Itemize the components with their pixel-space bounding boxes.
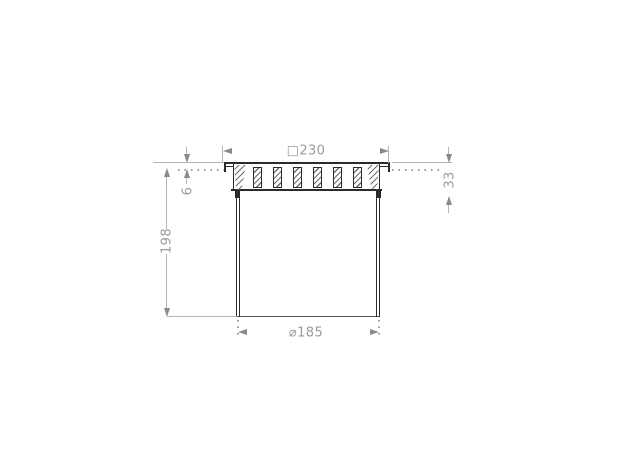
technical-drawing-canvas: □230 6 198 33 ⌀185 xyxy=(0,0,640,452)
arrow-6-down xyxy=(184,154,190,163)
ext-line-flange-right xyxy=(392,162,452,163)
arrow-33-down xyxy=(446,154,452,163)
body-bottom-line xyxy=(237,316,379,317)
arrow-6-up xyxy=(184,169,190,178)
arrow-33-up-stem xyxy=(448,205,449,213)
dim-line-198-lower xyxy=(166,254,167,309)
dim-label-body-diameter: ⌀185 xyxy=(289,326,323,341)
arrow-230-right xyxy=(380,148,389,154)
flange-tab-left xyxy=(224,162,226,172)
grate-slat xyxy=(273,167,282,188)
grate-slat xyxy=(313,167,322,188)
arrow-198-up xyxy=(164,168,170,177)
frame-bottom-line xyxy=(231,189,382,191)
body-wall-left xyxy=(236,191,240,317)
dim-label-frame-height: 33 xyxy=(443,171,458,188)
frame-right-line xyxy=(379,164,380,191)
grate-slat xyxy=(353,167,362,188)
flange-top-line xyxy=(224,162,390,164)
flange-tab-right xyxy=(388,162,390,172)
arrow-185-left xyxy=(238,329,247,335)
flange-underside-right xyxy=(380,166,388,167)
body-wall-right xyxy=(376,191,380,317)
frame-left-line xyxy=(233,164,234,191)
grate-slat xyxy=(293,167,302,188)
arrow-230-left xyxy=(223,148,232,154)
mounting-surface-dotted-right xyxy=(392,169,440,171)
dim-label-flange-protrusion: 6 xyxy=(181,187,196,196)
arrow-185-right xyxy=(370,329,379,335)
dim-label-body-depth: 198 xyxy=(160,228,175,254)
arrow-6-up-stem xyxy=(186,178,187,184)
dim-line-198-upper xyxy=(166,177,167,229)
ext-line-198-bottom xyxy=(167,316,237,317)
dim-label-frame-width: □230 xyxy=(287,144,326,159)
frame-section-right xyxy=(367,165,379,190)
grate-slat xyxy=(333,167,342,188)
arrow-33-up xyxy=(446,196,452,205)
grate-slat xyxy=(253,167,262,188)
frame-section-left xyxy=(234,165,246,190)
